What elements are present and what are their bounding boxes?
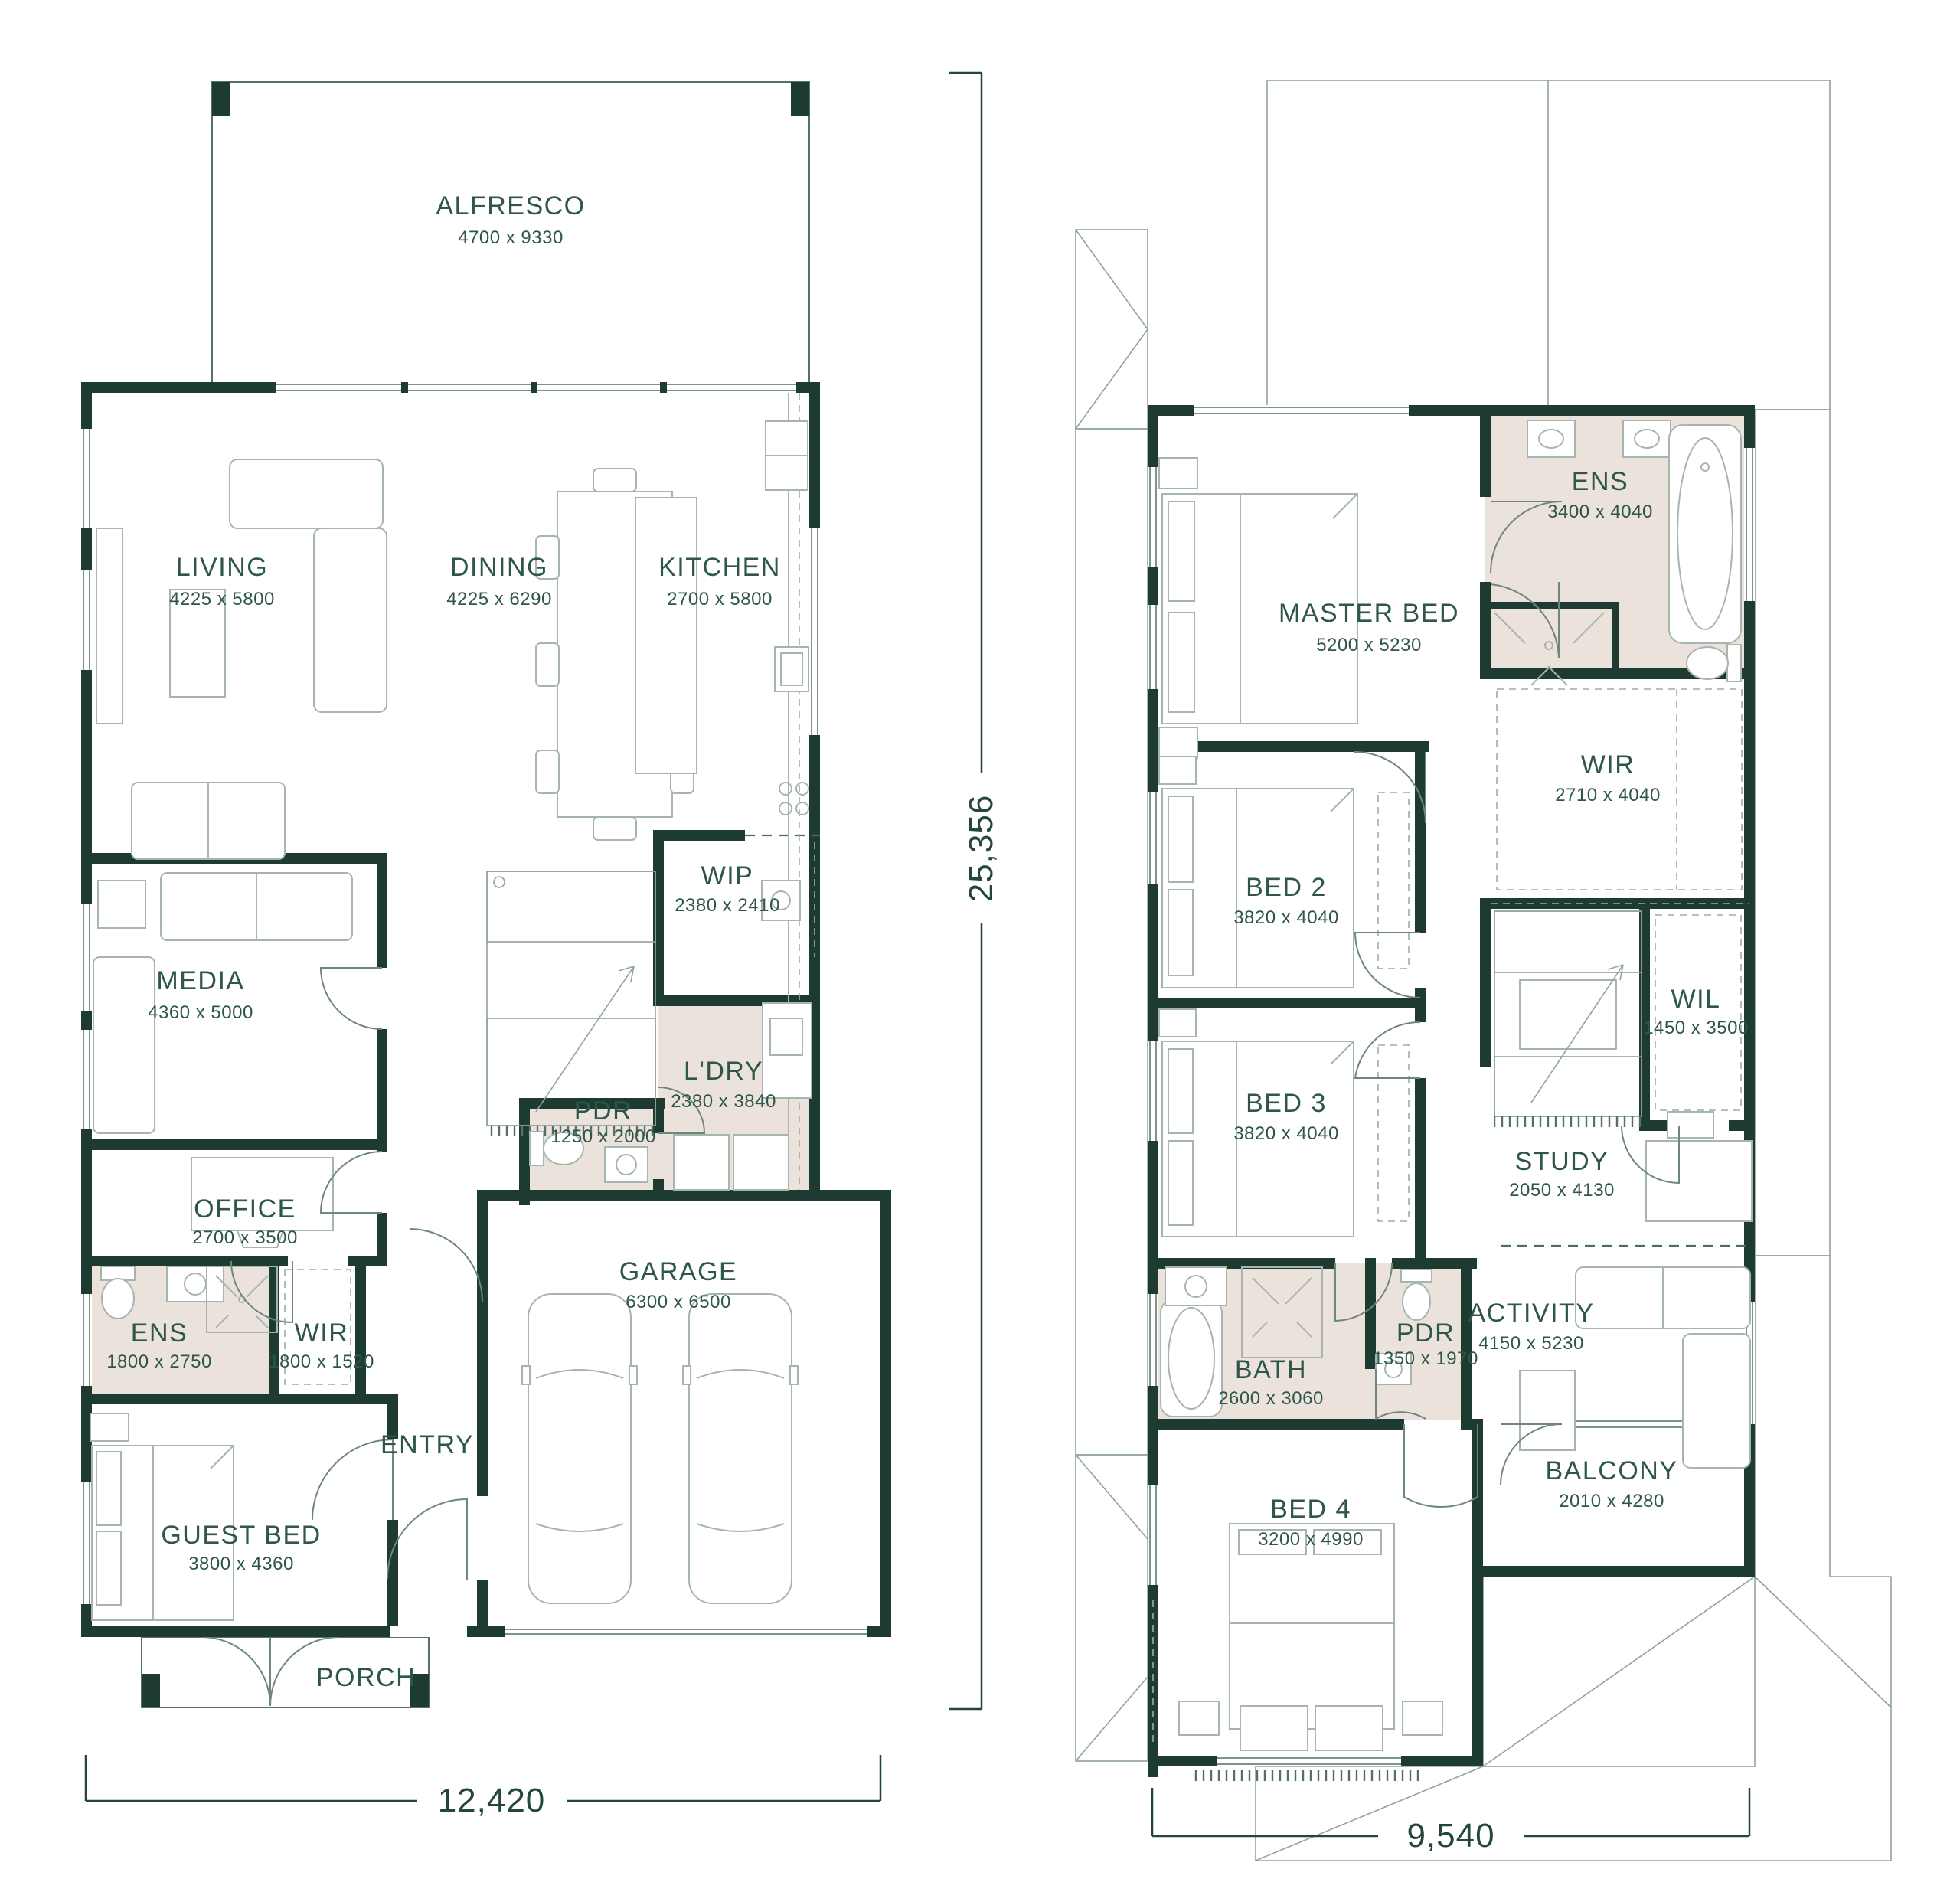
front-door <box>387 1499 467 1580</box>
room-name: GARAGE <box>619 1257 737 1286</box>
room-name: BED 3 <box>1246 1089 1327 1118</box>
activity-sofa <box>1520 1267 1750 1468</box>
room-dims: 4700 x 9330 <box>458 227 563 248</box>
dimension-text: 12,420 <box>438 1782 546 1819</box>
room-label-wil: WIL 1450 x 3500 <box>1643 985 1749 1038</box>
room-dims: 2010 x 4280 <box>1559 1491 1664 1511</box>
pdr-basin <box>605 1147 648 1182</box>
hall-door <box>410 1229 482 1302</box>
room-dims: 4225 x 6290 <box>446 589 552 609</box>
room-label-ldry: L'DRY 2380 x 3840 <box>671 1057 776 1112</box>
room-dims: 3400 x 4040 <box>1547 502 1653 522</box>
room-dims: 6300 x 6500 <box>626 1292 731 1312</box>
room-label-kitchen: KITCHEN 2700 x 5800 <box>658 553 781 609</box>
ens-basin <box>167 1266 224 1302</box>
room-name: BED 2 <box>1246 873 1327 902</box>
room-name: ENS <box>1572 467 1628 496</box>
room-name: BED 4 <box>1270 1495 1351 1524</box>
living-sofa <box>96 459 387 859</box>
room-dims: 3800 x 4360 <box>188 1554 294 1574</box>
room-label-balcony: BALCONY 2010 x 4280 <box>1546 1456 1678 1511</box>
room-name: GUEST BED <box>161 1521 321 1550</box>
bed3-door <box>1355 1022 1420 1078</box>
car <box>683 1294 798 1603</box>
room-dims: 5200 x 5230 <box>1316 635 1422 655</box>
room-label-bed-3: BED 3 3820 x 4040 <box>1233 1089 1339 1144</box>
room-dims: 3200 x 4990 <box>1258 1529 1364 1550</box>
room-label-activity: ACTIVITY 4150 x 5230 <box>1468 1299 1594 1354</box>
room-label-wir: WIR 2710 x 4040 <box>1555 750 1661 805</box>
room-label-bed-2: BED 2 3820 x 4040 <box>1233 873 1339 928</box>
bed4-door <box>1404 1424 1478 1507</box>
room-label-guest-bed: GUEST BED 3800 x 4360 <box>161 1521 321 1574</box>
room-label-dining: DINING 4225 x 6290 <box>446 553 552 609</box>
ens-toilet <box>1687 645 1741 681</box>
bed2-furniture <box>1159 756 1354 988</box>
room-name: WIR <box>295 1319 349 1348</box>
bed4-furniture <box>1179 1524 1442 1750</box>
cooktop <box>779 783 808 815</box>
room-label-study: STUDY 2050 x 4130 <box>1509 1147 1615 1201</box>
dimension-text: 25,356 <box>962 795 1000 903</box>
roof-hatching-top <box>1267 80 1830 410</box>
room-name: KITCHEN <box>658 553 781 582</box>
first-stairs <box>1494 911 1643 1127</box>
room-dims: 2600 x 3060 <box>1218 1388 1324 1409</box>
dimension-first-width: 9,540 <box>1152 1788 1749 1854</box>
guest-bed-furniture <box>90 1413 234 1620</box>
window-bed4 <box>1217 1756 1401 1766</box>
ground-room-labels: ALFRESCO 4700 x 9330 LIVING 4225 x 5800 … <box>106 191 781 1692</box>
room-name: LIVING <box>176 553 268 582</box>
room-dims: 2050 x 4130 <box>1509 1180 1615 1201</box>
room-name: STUDY <box>1515 1147 1609 1176</box>
bed2-robe <box>1378 792 1409 969</box>
room-name: ACTIVITY <box>1468 1299 1594 1328</box>
room-name: WIR <box>1581 750 1635 779</box>
room-dims: 3820 x 4040 <box>1233 907 1339 928</box>
room-label-bed-4: BED 4 3200 x 4990 <box>1258 1495 1364 1550</box>
room-label-garage: GARAGE 6300 x 6500 <box>619 1257 737 1312</box>
porch-double-door <box>201 1637 270 1706</box>
room-dims: 1450 x 3500 <box>1643 1018 1749 1038</box>
room-dims: 4225 x 5800 <box>169 589 275 609</box>
room-label-living: LIVING 4225 x 5800 <box>169 553 275 609</box>
first-floor-plan: MASTER BED 5200 x 5230 ENS 3400 x 4040 W… <box>1076 80 1891 1861</box>
roof-hatching-left <box>1076 230 1148 1761</box>
room-name: MEDIA <box>156 966 244 995</box>
media-door <box>321 968 382 1029</box>
roof-hatching-right <box>1755 410 1830 1256</box>
ground-floor-plan: ALFRESCO 4700 x 9330 LIVING 4225 x 5800 … <box>81 73 1000 1819</box>
room-dims: 3820 x 4040 <box>1233 1123 1339 1144</box>
room-name: PORCH <box>316 1663 416 1692</box>
room-label-alfresco: ALFRESCO 4700 x 9330 <box>436 191 585 248</box>
bed4-balustrade <box>1194 1770 1424 1781</box>
room-dims: 1800 x 2750 <box>106 1351 212 1372</box>
ens-bathtub <box>1669 425 1741 643</box>
dimension-text: 9,540 <box>1406 1817 1494 1854</box>
room-name: PDR <box>1396 1319 1455 1348</box>
room-dims: 2380 x 2410 <box>675 895 780 916</box>
room-label-media: MEDIA 4360 x 5000 <box>148 966 253 1023</box>
bath-basin <box>1165 1267 1227 1305</box>
window-band-alfresco <box>276 382 796 393</box>
dimension-ground-width: 12,420 <box>86 1755 880 1819</box>
pdr-toilet <box>1401 1270 1432 1320</box>
room-name: PDR <box>574 1096 632 1126</box>
room-dims: 2380 x 3840 <box>671 1091 776 1112</box>
room-dims: 2710 x 4040 <box>1555 785 1661 805</box>
room-name: OFFICE <box>194 1194 296 1224</box>
front-door-opening <box>390 1626 467 1637</box>
room-name: WIP <box>701 861 754 890</box>
ens-toilet <box>101 1266 135 1319</box>
room-dims: 1350 x 1970 <box>1373 1348 1478 1369</box>
room-dims: 1250 x 2000 <box>550 1126 656 1147</box>
room-name: MASTER BED <box>1279 599 1459 628</box>
room-dims: 1800 x 1520 <box>269 1351 374 1372</box>
kitchen-sink <box>775 647 808 691</box>
room-name: DINING <box>450 553 548 582</box>
window-band-master <box>1194 405 1409 416</box>
room-dims: 4360 x 5000 <box>148 1002 253 1023</box>
garage-door <box>505 1626 867 1637</box>
floor-plan-canvas: ALFRESCO 4700 x 9330 LIVING 4225 x 5800 … <box>0 0 1960 1892</box>
fridge <box>766 421 808 490</box>
porch-post <box>142 1674 160 1707</box>
room-dims: 4150 x 5230 <box>1478 1333 1584 1354</box>
bed3-robe <box>1378 1045 1409 1221</box>
room-label-entry: ENTRY <box>381 1430 474 1459</box>
car <box>522 1294 637 1603</box>
room-label-office: OFFICE 2700 x 3500 <box>192 1194 298 1248</box>
room-name: BALCONY <box>1546 1456 1678 1485</box>
room-name: BATH <box>1235 1355 1307 1384</box>
room-label-porch: PORCH <box>316 1663 416 1692</box>
room-name: ENS <box>131 1319 188 1348</box>
alfresco-post <box>212 82 230 116</box>
bed2-door <box>1355 933 1420 998</box>
room-name: ALFRESCO <box>436 191 585 221</box>
room-name: ENTRY <box>381 1430 474 1459</box>
room-dims: 2700 x 5800 <box>667 589 773 609</box>
room-dims: 2700 x 3500 <box>192 1227 298 1248</box>
room-name: L'DRY <box>684 1057 763 1086</box>
bath-bathtub <box>1161 1300 1222 1417</box>
dimension-overall-height: 25,356 <box>949 73 1000 1709</box>
alfresco-post <box>791 82 809 116</box>
room-name: WIL <box>1671 985 1721 1014</box>
